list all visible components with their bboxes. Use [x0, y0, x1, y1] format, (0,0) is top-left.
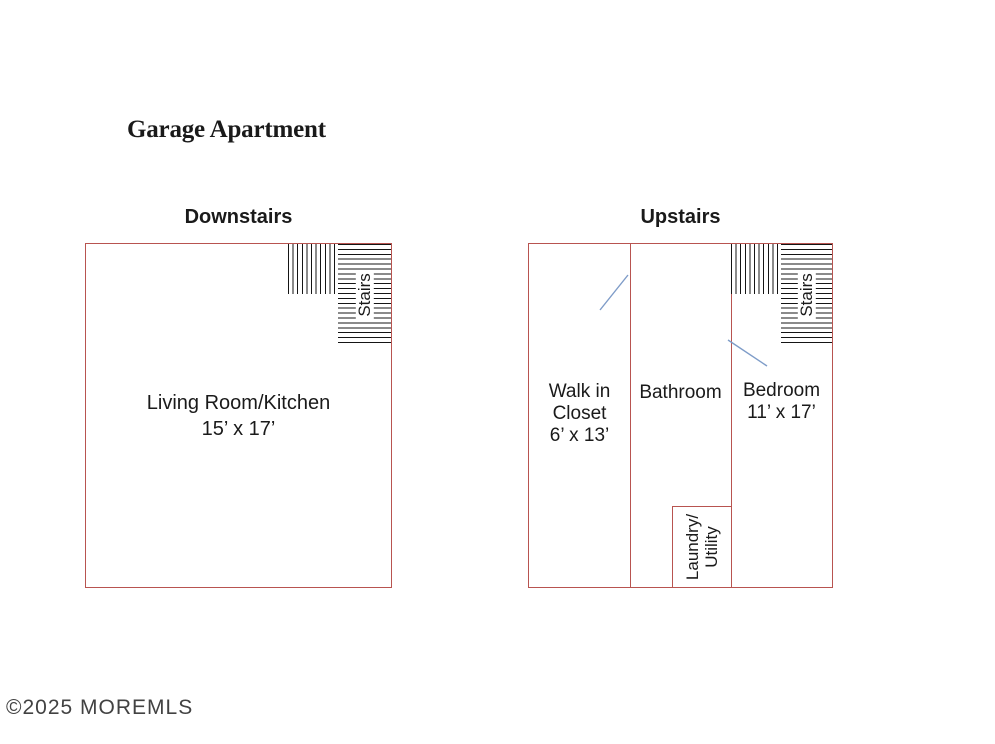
room-name: Bedroom: [731, 380, 832, 402]
downstairs-stairs-label: Stairs: [356, 270, 374, 319]
room-name: Laundry/: [683, 514, 702, 580]
room-name: Bathroom: [630, 382, 731, 404]
room-name: Walk in: [529, 381, 630, 403]
bedroom-door-swing-line: [728, 340, 767, 366]
downstairs-heading: Downstairs: [85, 206, 392, 229]
room-dimensions: 15’ x 17’: [86, 416, 391, 442]
upstairs-stairs-label: Stairs: [798, 270, 816, 319]
room-name: Utility: [702, 514, 721, 580]
upstairs-stairs-hatch-horizontal: Stairs: [781, 244, 832, 346]
laundry-utility-room: Laundry/ Utility: [672, 506, 732, 588]
bathroom-label: Bathroom: [630, 382, 731, 404]
downstairs-floor-outline: Stairs Living Room/Kitchen 15’ x 17’: [85, 243, 392, 588]
living-room-kitchen-label: Living Room/Kitchen 15’ x 17’: [86, 390, 391, 442]
walk-in-closet-label: Walk in Closet 6’ x 13’: [529, 381, 630, 447]
upstairs-floor-outline: Stairs Walk in Closet 6’ x 13’ Bathroom …: [528, 243, 833, 588]
closet-bathroom-wall: [630, 244, 631, 587]
upstairs-stairs-hatch-vertical: [731, 244, 781, 294]
room-dimensions: 6’ x 13’: [529, 425, 630, 447]
downstairs-stairs-hatch-horizontal: Stairs: [338, 244, 391, 346]
floor-plan: Garage Apartment Downstairs Upstairs Sta…: [0, 0, 995, 744]
room-name: Closet: [529, 403, 630, 425]
closet-door-swing-line: [600, 275, 628, 310]
room-dimensions: 11’ x 17’: [731, 402, 832, 424]
copyright-watermark: ©2025 MOREMLS: [6, 696, 193, 720]
room-name: Living Room/Kitchen: [86, 390, 391, 416]
upstairs-heading: Upstairs: [528, 206, 833, 229]
bedroom-label: Bedroom 11’ x 17’: [731, 380, 832, 424]
downstairs-stairs-hatch-vertical: [288, 244, 338, 294]
laundry-utility-label: Laundry/ Utility: [683, 514, 721, 580]
page-title: Garage Apartment: [127, 116, 326, 144]
